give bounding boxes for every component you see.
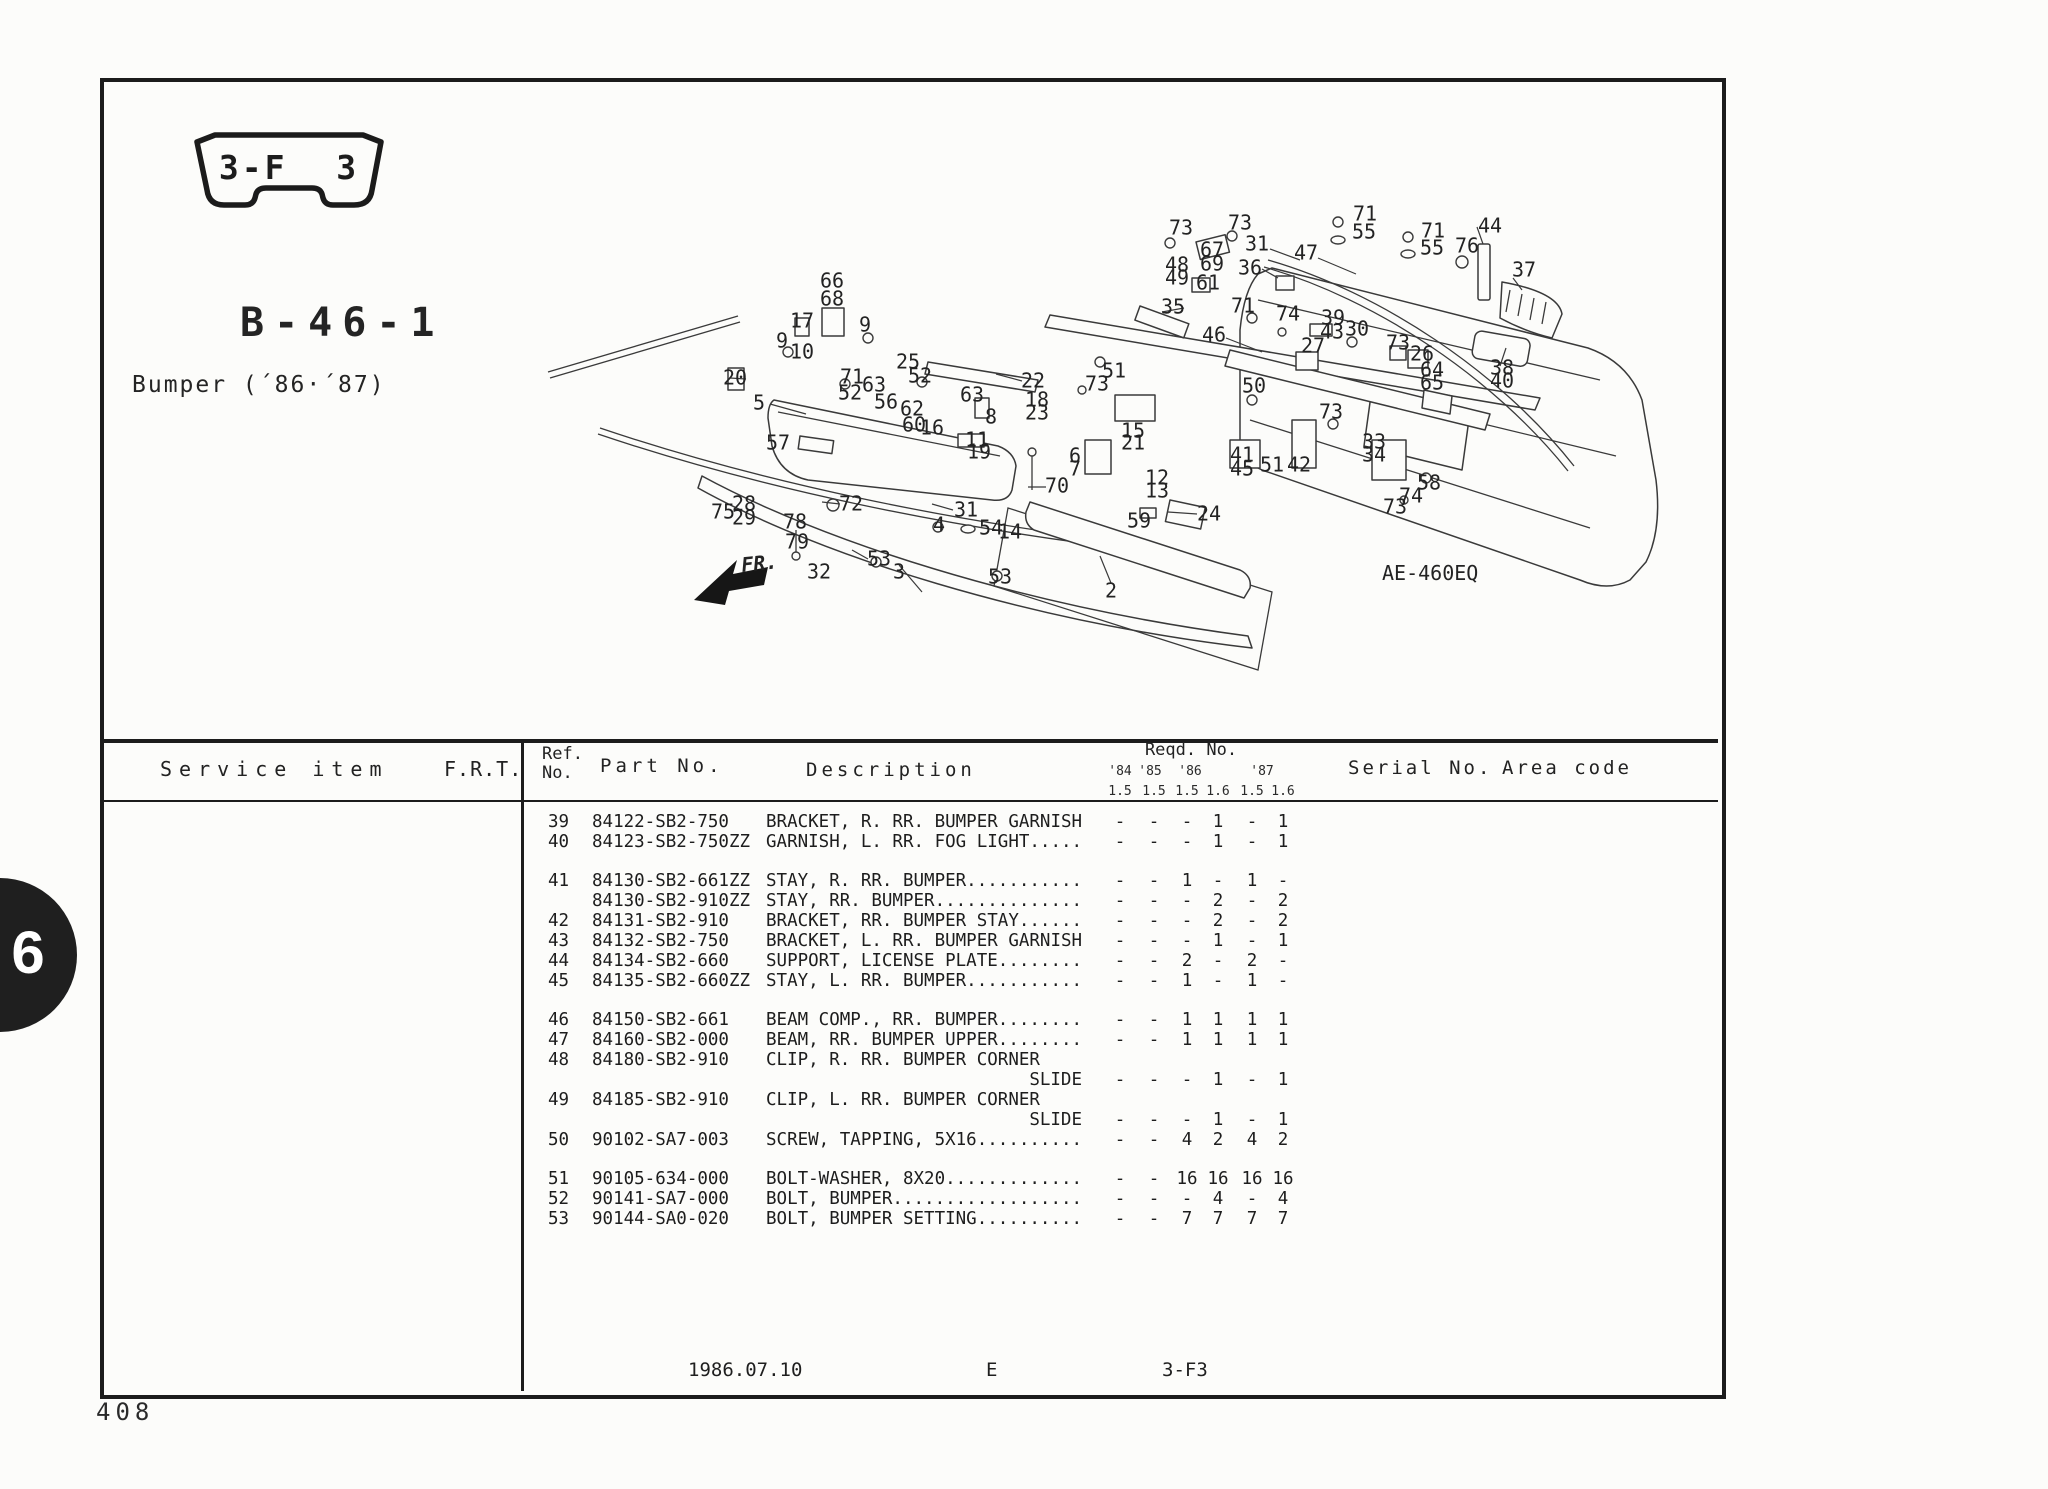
table-row: 4684150-SB2-661BEAM COMP., RR. BUMPER...… bbox=[0, 1010, 2048, 1030]
cell-qty: 1 bbox=[1266, 931, 1300, 951]
cell-qty: - bbox=[1103, 971, 1137, 991]
cell-part-no: 84135-SB2-660ZZ bbox=[592, 971, 750, 991]
cell-part-no: 90102-SA7-003 bbox=[592, 1130, 729, 1150]
cell-qty: 7 bbox=[1235, 1209, 1269, 1229]
table-row: 4884180-SB2-910CLIP, R. RR. BUMPER CORNE… bbox=[0, 1050, 2048, 1070]
cell-qty: 1 bbox=[1266, 812, 1300, 832]
cell-qty: 1 bbox=[1170, 1010, 1204, 1030]
cell-qty: 2 bbox=[1266, 1130, 1300, 1150]
table-row: 4384132-SB2-750BRACKET, L. RR. BUMPER GA… bbox=[0, 931, 2048, 951]
cell-qty: - bbox=[1103, 911, 1137, 931]
cell-description: BOLT, BUMPER SETTING.......... bbox=[766, 1209, 1082, 1229]
reqd-engine-label: 1.5 bbox=[1240, 784, 1263, 799]
cell-description: CLIP, L. RR. BUMPER CORNER bbox=[766, 1090, 1082, 1110]
cell-ref-no: 45 bbox=[548, 971, 569, 991]
cell-qty: - bbox=[1103, 931, 1137, 951]
cell-qty: 1 bbox=[1235, 971, 1269, 991]
reqd-engine-label: 1.5 bbox=[1175, 784, 1198, 799]
cell-description: STAY, L. RR. BUMPER........... bbox=[766, 971, 1082, 991]
reqd-engine-label: 1.5 bbox=[1142, 784, 1165, 799]
reqd-years: '84'85'86'87 bbox=[0, 764, 2048, 780]
cell-qty: - bbox=[1170, 931, 1204, 951]
cell-part-no: 90141-SA7-000 bbox=[592, 1189, 729, 1209]
cell-description: SUPPORT, LICENSE PLATE........ bbox=[766, 951, 1082, 971]
cell-qty: - bbox=[1103, 1169, 1137, 1189]
cell-qty: - bbox=[1235, 832, 1269, 852]
cell-qty: 1 bbox=[1201, 1070, 1235, 1090]
cell-description: SLIDE bbox=[766, 1070, 1082, 1090]
cell-qty: - bbox=[1170, 1110, 1204, 1130]
cell-qty: 1 bbox=[1201, 1030, 1235, 1050]
cell-qty: 4 bbox=[1266, 1189, 1300, 1209]
cell-qty: - bbox=[1137, 1110, 1171, 1130]
table-rows: 3984122-SB2-750BRACKET, R. RR. BUMPER GA… bbox=[0, 812, 2048, 1229]
table-row: SLIDE---1-1 bbox=[0, 1110, 2048, 1130]
cell-qty: - bbox=[1201, 951, 1235, 971]
reqd-engines: 1.51.51.51.61.51.6 bbox=[0, 784, 2048, 798]
cell-part-no: 84185-SB2-910 bbox=[592, 1090, 729, 1110]
cell-ref-no: 52 bbox=[548, 1189, 569, 1209]
cell-qty: 1 bbox=[1235, 1010, 1269, 1030]
cell-qty: - bbox=[1103, 1189, 1137, 1209]
cell-ref-no: 49 bbox=[548, 1090, 569, 1110]
cell-qty: 2 bbox=[1266, 891, 1300, 911]
cell-part-no: 84123-SB2-750ZZ bbox=[592, 832, 750, 852]
cell-qty: 7 bbox=[1266, 1209, 1300, 1229]
reqd-year-label: '86 bbox=[1178, 764, 1201, 779]
cell-description: STAY, RR. BUMPER.............. bbox=[766, 891, 1082, 911]
cell-qty: - bbox=[1137, 1189, 1171, 1209]
cell-qty: - bbox=[1170, 911, 1204, 931]
cell-qty: - bbox=[1103, 951, 1137, 971]
cell-part-no: 84130-SB2-910ZZ bbox=[592, 891, 750, 911]
cell-part-no: 90105-634-000 bbox=[592, 1169, 729, 1189]
cell-part-no: 90144-SA0-020 bbox=[592, 1209, 729, 1229]
cell-qty: - bbox=[1103, 1030, 1137, 1050]
cell-qty: 2 bbox=[1235, 951, 1269, 971]
cell-qty: 4 bbox=[1235, 1130, 1269, 1150]
cell-description: SLIDE bbox=[766, 1110, 1082, 1130]
cell-part-no: 84160-SB2-000 bbox=[592, 1030, 729, 1050]
cell-qty: - bbox=[1235, 1189, 1269, 1209]
table-row: 84130-SB2-910ZZSTAY, RR. BUMPER.........… bbox=[0, 891, 2048, 911]
cell-qty: 7 bbox=[1201, 1209, 1235, 1229]
cell-qty: - bbox=[1137, 911, 1171, 931]
cell-qty: - bbox=[1235, 891, 1269, 911]
footer-date: 1986.07.10 bbox=[688, 1359, 802, 1381]
cell-qty: - bbox=[1266, 971, 1300, 991]
cell-description: BEAM COMP., RR. BUMPER........ bbox=[766, 1010, 1082, 1030]
cell-qty: 1 bbox=[1201, 812, 1235, 832]
cell-description: STAY, R. RR. BUMPER........... bbox=[766, 871, 1082, 891]
reqd-engine-label: 1.6 bbox=[1271, 784, 1294, 799]
cell-qty: - bbox=[1170, 1189, 1204, 1209]
page-subtitle: Bumper (´86·´87) bbox=[132, 372, 386, 398]
table-row: 4584135-SB2-660ZZSTAY, L. RR. BUMPER....… bbox=[0, 971, 2048, 991]
cell-ref-no: 43 bbox=[548, 931, 569, 951]
table-header-rule bbox=[100, 800, 1718, 802]
cell-qty: 1 bbox=[1170, 1030, 1204, 1050]
cell-qty: 1 bbox=[1201, 1110, 1235, 1130]
cell-qty: - bbox=[1235, 931, 1269, 951]
table-row: 4484134-SB2-660SUPPORT, LICENSE PLATE...… bbox=[0, 951, 2048, 971]
cell-qty: - bbox=[1103, 871, 1137, 891]
cell-ref-no: 41 bbox=[548, 871, 569, 891]
cell-description: BRACKET, L. RR. BUMPER GARNISH bbox=[766, 931, 1082, 951]
cell-qty: 1 bbox=[1266, 1030, 1300, 1050]
cell-qty: 1 bbox=[1201, 931, 1235, 951]
table-row: 4984185-SB2-910CLIP, L. RR. BUMPER CORNE… bbox=[0, 1090, 2048, 1110]
footer-section: 3-F3 bbox=[1162, 1359, 1208, 1381]
cell-qty: 1 bbox=[1201, 1010, 1235, 1030]
cell-qty: 16 bbox=[1170, 1169, 1204, 1189]
table-row: 5090102-SA7-003SCREW, TAPPING, 5X16.....… bbox=[0, 1130, 2048, 1150]
cell-qty: - bbox=[1137, 1070, 1171, 1090]
cell-qty: - bbox=[1137, 891, 1171, 911]
cell-ref-no: 39 bbox=[548, 812, 569, 832]
table-row: 4784160-SB2-000BEAM, RR. BUMPER UPPER...… bbox=[0, 1030, 2048, 1050]
table-row: 4084123-SB2-750ZZGARNISH, L. RR. FOG LIG… bbox=[0, 832, 2048, 852]
cell-qty: 16 bbox=[1235, 1169, 1269, 1189]
cell-qty: 4 bbox=[1201, 1189, 1235, 1209]
cell-qty: - bbox=[1103, 1130, 1137, 1150]
cell-qty: 1 bbox=[1235, 871, 1269, 891]
cell-qty: - bbox=[1103, 1010, 1137, 1030]
col-header-reqd-no: Reqd. No. bbox=[1145, 740, 1237, 760]
reqd-year-label: '85 bbox=[1138, 764, 1161, 779]
cell-ref-no: 50 bbox=[548, 1130, 569, 1150]
cell-qty: - bbox=[1235, 812, 1269, 832]
cell-description: CLIP, R. RR. BUMPER CORNER bbox=[766, 1050, 1082, 1070]
cell-qty: - bbox=[1137, 1010, 1171, 1030]
table-row: 5290141-SA7-000BOLT, BUMPER.............… bbox=[0, 1189, 2048, 1209]
col-header-ref-no-line1: Ref. bbox=[542, 744, 583, 764]
cell-qty: - bbox=[1137, 971, 1171, 991]
page-title: B-46-1 bbox=[240, 300, 445, 346]
cell-description: BOLT-WASHER, 8X20............. bbox=[766, 1169, 1082, 1189]
cell-qty: - bbox=[1137, 832, 1171, 852]
cell-qty: 1 bbox=[1266, 1070, 1300, 1090]
cell-qty: - bbox=[1137, 1209, 1171, 1229]
table-row: SLIDE---1-1 bbox=[0, 1070, 2048, 1090]
cell-qty: - bbox=[1137, 951, 1171, 971]
cell-qty: - bbox=[1170, 891, 1204, 911]
cell-ref-no: 40 bbox=[548, 832, 569, 852]
cell-ref-no: 42 bbox=[548, 911, 569, 931]
footer-edition: E bbox=[986, 1359, 997, 1381]
cell-ref-no: 48 bbox=[548, 1050, 569, 1070]
cell-ref-no: 44 bbox=[548, 951, 569, 971]
cell-part-no: 84134-SB2-660 bbox=[592, 951, 729, 971]
cell-part-no: 84150-SB2-661 bbox=[592, 1010, 729, 1030]
cell-qty: - bbox=[1170, 1070, 1204, 1090]
cell-qty: - bbox=[1201, 871, 1235, 891]
cell-qty: - bbox=[1266, 871, 1300, 891]
cell-qty: - bbox=[1137, 1130, 1171, 1150]
cell-qty: - bbox=[1103, 832, 1137, 852]
cell-qty: 2 bbox=[1201, 1130, 1235, 1150]
cell-qty: - bbox=[1235, 1070, 1269, 1090]
cell-qty: 2 bbox=[1201, 911, 1235, 931]
cell-qty: 2 bbox=[1266, 911, 1300, 931]
cell-qty: 16 bbox=[1201, 1169, 1235, 1189]
cell-qty: 2 bbox=[1201, 891, 1235, 911]
cell-description: GARNISH, L. RR. FOG LIGHT..... bbox=[766, 832, 1082, 852]
cell-qty: 1 bbox=[1235, 1030, 1269, 1050]
cell-qty: - bbox=[1235, 911, 1269, 931]
cell-ref-no: 46 bbox=[548, 1010, 569, 1030]
cell-qty: - bbox=[1137, 1169, 1171, 1189]
cell-description: BOLT, BUMPER.................. bbox=[766, 1189, 1082, 1209]
cell-qty: - bbox=[1170, 812, 1204, 832]
cell-description: BEAM, RR. BUMPER UPPER........ bbox=[766, 1030, 1082, 1050]
cell-description: BRACKET, RR. BUMPER STAY...... bbox=[766, 911, 1082, 931]
cell-qty: - bbox=[1235, 1110, 1269, 1130]
reqd-year-label: '87 bbox=[1250, 764, 1273, 779]
cell-qty: 1 bbox=[1266, 1110, 1300, 1130]
cell-qty: - bbox=[1103, 891, 1137, 911]
cell-ref-no: 51 bbox=[548, 1169, 569, 1189]
table-row: 5190105-634-000BOLT-WASHER, 8X20........… bbox=[0, 1169, 2048, 1189]
cell-part-no: 84132-SB2-750 bbox=[592, 931, 729, 951]
cell-qty: - bbox=[1170, 832, 1204, 852]
reqd-engine-label: 1.5 bbox=[1108, 784, 1131, 799]
cell-qty: 4 bbox=[1170, 1130, 1204, 1150]
section-badge-label: 3-F 3 bbox=[183, 148, 395, 187]
cell-qty: - bbox=[1266, 951, 1300, 971]
cell-qty: - bbox=[1103, 1070, 1137, 1090]
table-top-rule bbox=[100, 739, 1718, 743]
table-row: 5390144-SA0-020BOLT, BUMPER SETTING.....… bbox=[0, 1209, 2048, 1229]
cell-description: SCREW, TAPPING, 5X16.......... bbox=[766, 1130, 1082, 1150]
reqd-engine-label: 1.6 bbox=[1206, 784, 1229, 799]
cell-ref-no: 53 bbox=[548, 1209, 569, 1229]
cell-qty: - bbox=[1201, 971, 1235, 991]
cell-qty: 1 bbox=[1266, 1010, 1300, 1030]
table-row: 4184130-SB2-661ZZSTAY, R. RR. BUMPER....… bbox=[0, 871, 2048, 891]
cell-part-no: 84131-SB2-910 bbox=[592, 911, 729, 931]
cell-qty: 7 bbox=[1170, 1209, 1204, 1229]
cell-qty: - bbox=[1103, 812, 1137, 832]
table-row: 4284131-SB2-910BRACKET, RR. BUMPER STAY.… bbox=[0, 911, 2048, 931]
cell-qty: - bbox=[1103, 1110, 1137, 1130]
cell-qty: - bbox=[1137, 931, 1171, 951]
cell-description: BRACKET, R. RR. BUMPER GARNISH bbox=[766, 812, 1082, 832]
cell-qty: - bbox=[1103, 1209, 1137, 1229]
cell-part-no: 84122-SB2-750 bbox=[592, 812, 729, 832]
cell-part-no: 84180-SB2-910 bbox=[592, 1050, 729, 1070]
table-row: 3984122-SB2-750BRACKET, R. RR. BUMPER GA… bbox=[0, 812, 2048, 832]
cell-qty: 2 bbox=[1170, 951, 1204, 971]
cell-qty: - bbox=[1137, 812, 1171, 832]
cell-qty: 1 bbox=[1266, 832, 1300, 852]
cell-qty: - bbox=[1137, 871, 1171, 891]
cell-ref-no: 47 bbox=[548, 1030, 569, 1050]
cell-qty: 16 bbox=[1266, 1169, 1300, 1189]
cell-qty: 1 bbox=[1170, 871, 1204, 891]
page-number: 408 bbox=[96, 1398, 154, 1426]
cell-qty: 1 bbox=[1170, 971, 1204, 991]
cell-qty: 1 bbox=[1201, 832, 1235, 852]
cell-qty: - bbox=[1137, 1030, 1171, 1050]
reqd-year-label: '84 bbox=[1108, 764, 1131, 779]
cell-part-no: 84130-SB2-661ZZ bbox=[592, 871, 750, 891]
